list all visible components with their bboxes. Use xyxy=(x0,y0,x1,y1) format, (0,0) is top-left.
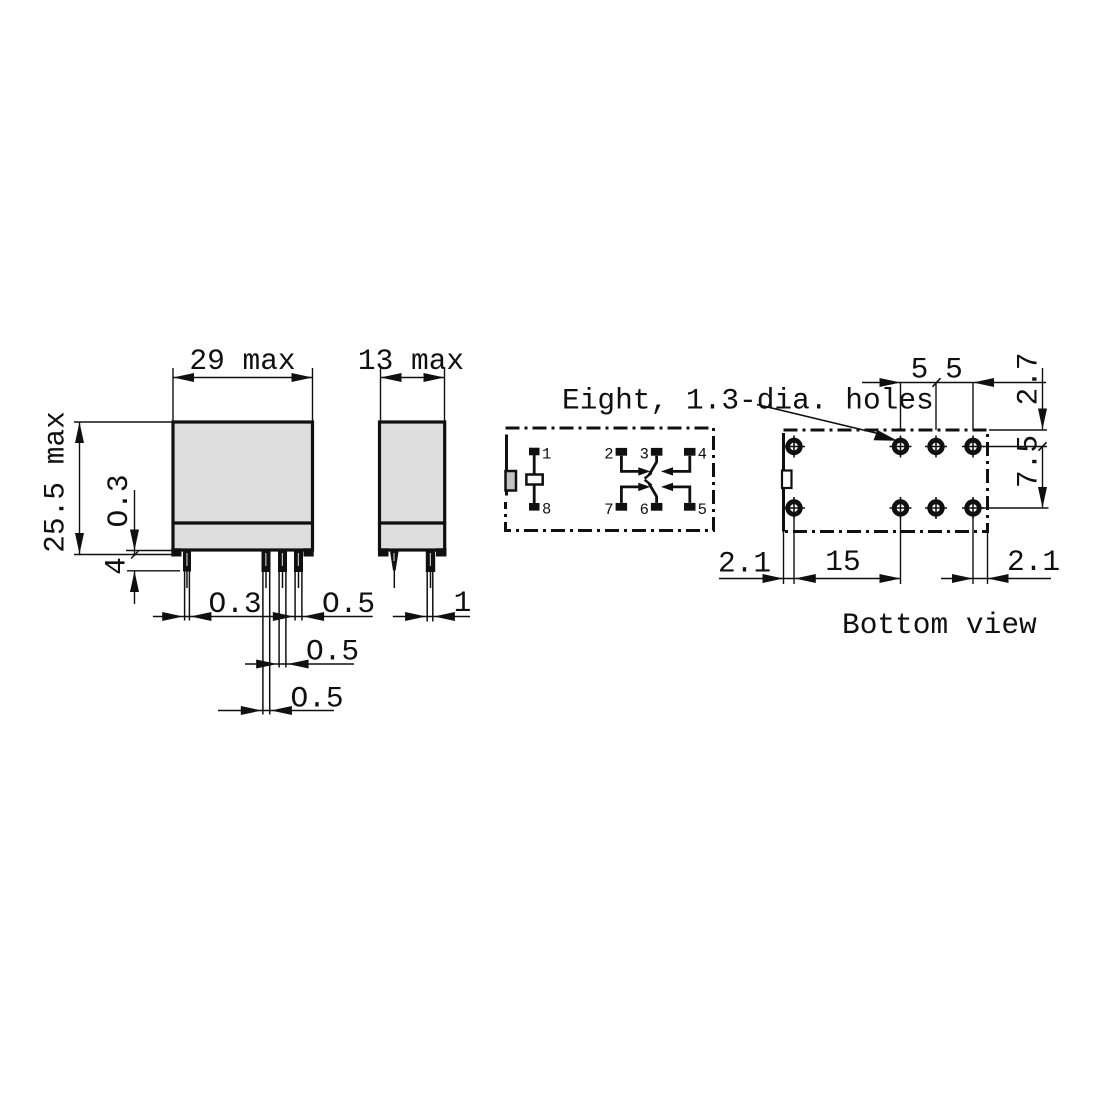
svg-text:1: 1 xyxy=(454,586,472,620)
svg-text:8: 8 xyxy=(542,501,551,519)
svg-text:5: 5 xyxy=(698,501,707,519)
svg-text:5: 5 xyxy=(945,353,963,387)
svg-text:4: 4 xyxy=(100,557,134,575)
svg-text:3: 3 xyxy=(640,446,649,464)
svg-text:4: 4 xyxy=(698,446,707,464)
svg-text:O.3: O.3 xyxy=(102,474,136,527)
svg-text:Eight, 1.3-dia. holes: Eight, 1.3-dia. holes xyxy=(562,384,934,418)
svg-text:7.5: 7.5 xyxy=(1012,435,1046,488)
svg-text:13 max: 13 max xyxy=(358,344,464,378)
svg-text:29 max: 29 max xyxy=(189,344,295,378)
svg-text:15: 15 xyxy=(825,545,860,579)
svg-text:5: 5 xyxy=(911,353,929,387)
svg-text:2: 2 xyxy=(604,446,613,464)
svg-text:2.1: 2.1 xyxy=(1007,545,1060,579)
svg-text:6: 6 xyxy=(640,501,649,519)
svg-text:25.5 max: 25.5 max xyxy=(39,411,73,553)
svg-text:Bottom view: Bottom view xyxy=(842,608,1037,642)
svg-text:1: 1 xyxy=(542,446,551,464)
svg-text:7: 7 xyxy=(604,501,613,519)
svg-text:2.7: 2.7 xyxy=(1012,352,1046,405)
